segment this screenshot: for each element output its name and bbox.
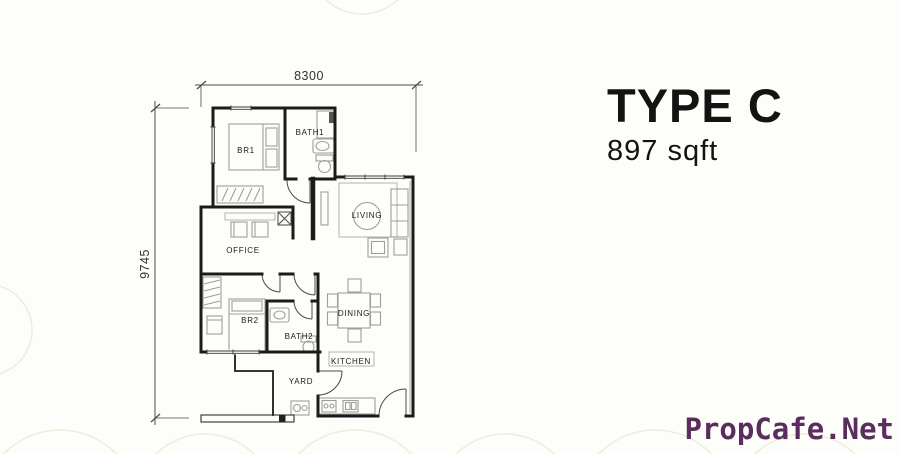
living-top-window: [345, 175, 404, 180]
br1-left-window: [211, 127, 216, 163]
dimension-width-label: 8300: [294, 69, 324, 83]
room-label-yard: YARD: [289, 377, 313, 386]
dimension-height-label: 9745: [138, 249, 152, 279]
room-label-kitchen: KITCHEN: [331, 357, 371, 366]
yard-step-walls: [235, 352, 273, 415]
dimension-top-extensions: [201, 85, 416, 152]
windows: [207, 106, 404, 355]
room-label-bath2: BATH2: [285, 332, 314, 341]
office-desk: [225, 213, 275, 237]
boundary-ledge: [201, 415, 294, 422]
bath1-door: [287, 180, 310, 203]
living-sofa: [391, 189, 408, 237]
hall-door: [294, 274, 315, 295]
bath2-door: [294, 301, 312, 319]
yard-washer: [291, 401, 309, 415]
br2-bed: [229, 299, 265, 352]
kitchen-counter: [318, 398, 375, 414]
room-label-living: LIVING: [352, 211, 382, 220]
br2-wardrobe: [203, 277, 221, 308]
room-label-br1: BR1: [237, 146, 255, 155]
furniture: [203, 111, 408, 415]
unit-area-label: 897 sqft: [607, 135, 783, 168]
living-coffee-table: [368, 238, 388, 257]
living-side-table: [394, 239, 407, 255]
doors: [262, 180, 406, 416]
entrance-door: [379, 389, 406, 416]
bath2-sink: [270, 308, 289, 322]
bath1-toilet: [316, 155, 333, 173]
living-rug: [339, 183, 397, 237]
floorplan-page: 8300 9745: [0, 0, 901, 454]
br1-top-window: [231, 106, 251, 111]
br2-door: [262, 274, 280, 292]
room-label-bath1: BATH1: [296, 128, 325, 137]
living-tv-unit: [321, 192, 328, 225]
br1-wardrobe: [217, 186, 263, 203]
room-label-dining: DINING: [338, 309, 370, 318]
floorplan-drawing: 8300 9745: [0, 0, 901, 454]
background-decor: [0, 0, 877, 454]
bath1-sink: [313, 139, 334, 153]
yard-door: [318, 371, 342, 395]
unit-type-title: TYPE C: [607, 82, 783, 130]
room-labels: BR1 BATH1 OFFICE LIVING BR2 BATH2 DINING…: [226, 128, 382, 386]
title-block: TYPE C 897 sqft: [607, 82, 783, 168]
dimension-left-extensions: [155, 108, 189, 418]
br2-bottom-window: [207, 350, 259, 355]
service-shaft: [278, 212, 291, 225]
outer-walls: [201, 108, 413, 416]
br2-seat: [207, 316, 222, 334]
walls: [201, 108, 413, 422]
room-label-office: OFFICE: [226, 246, 260, 255]
watermark-text: PropCafe.Net: [684, 412, 894, 446]
room-label-br2: BR2: [241, 316, 259, 325]
